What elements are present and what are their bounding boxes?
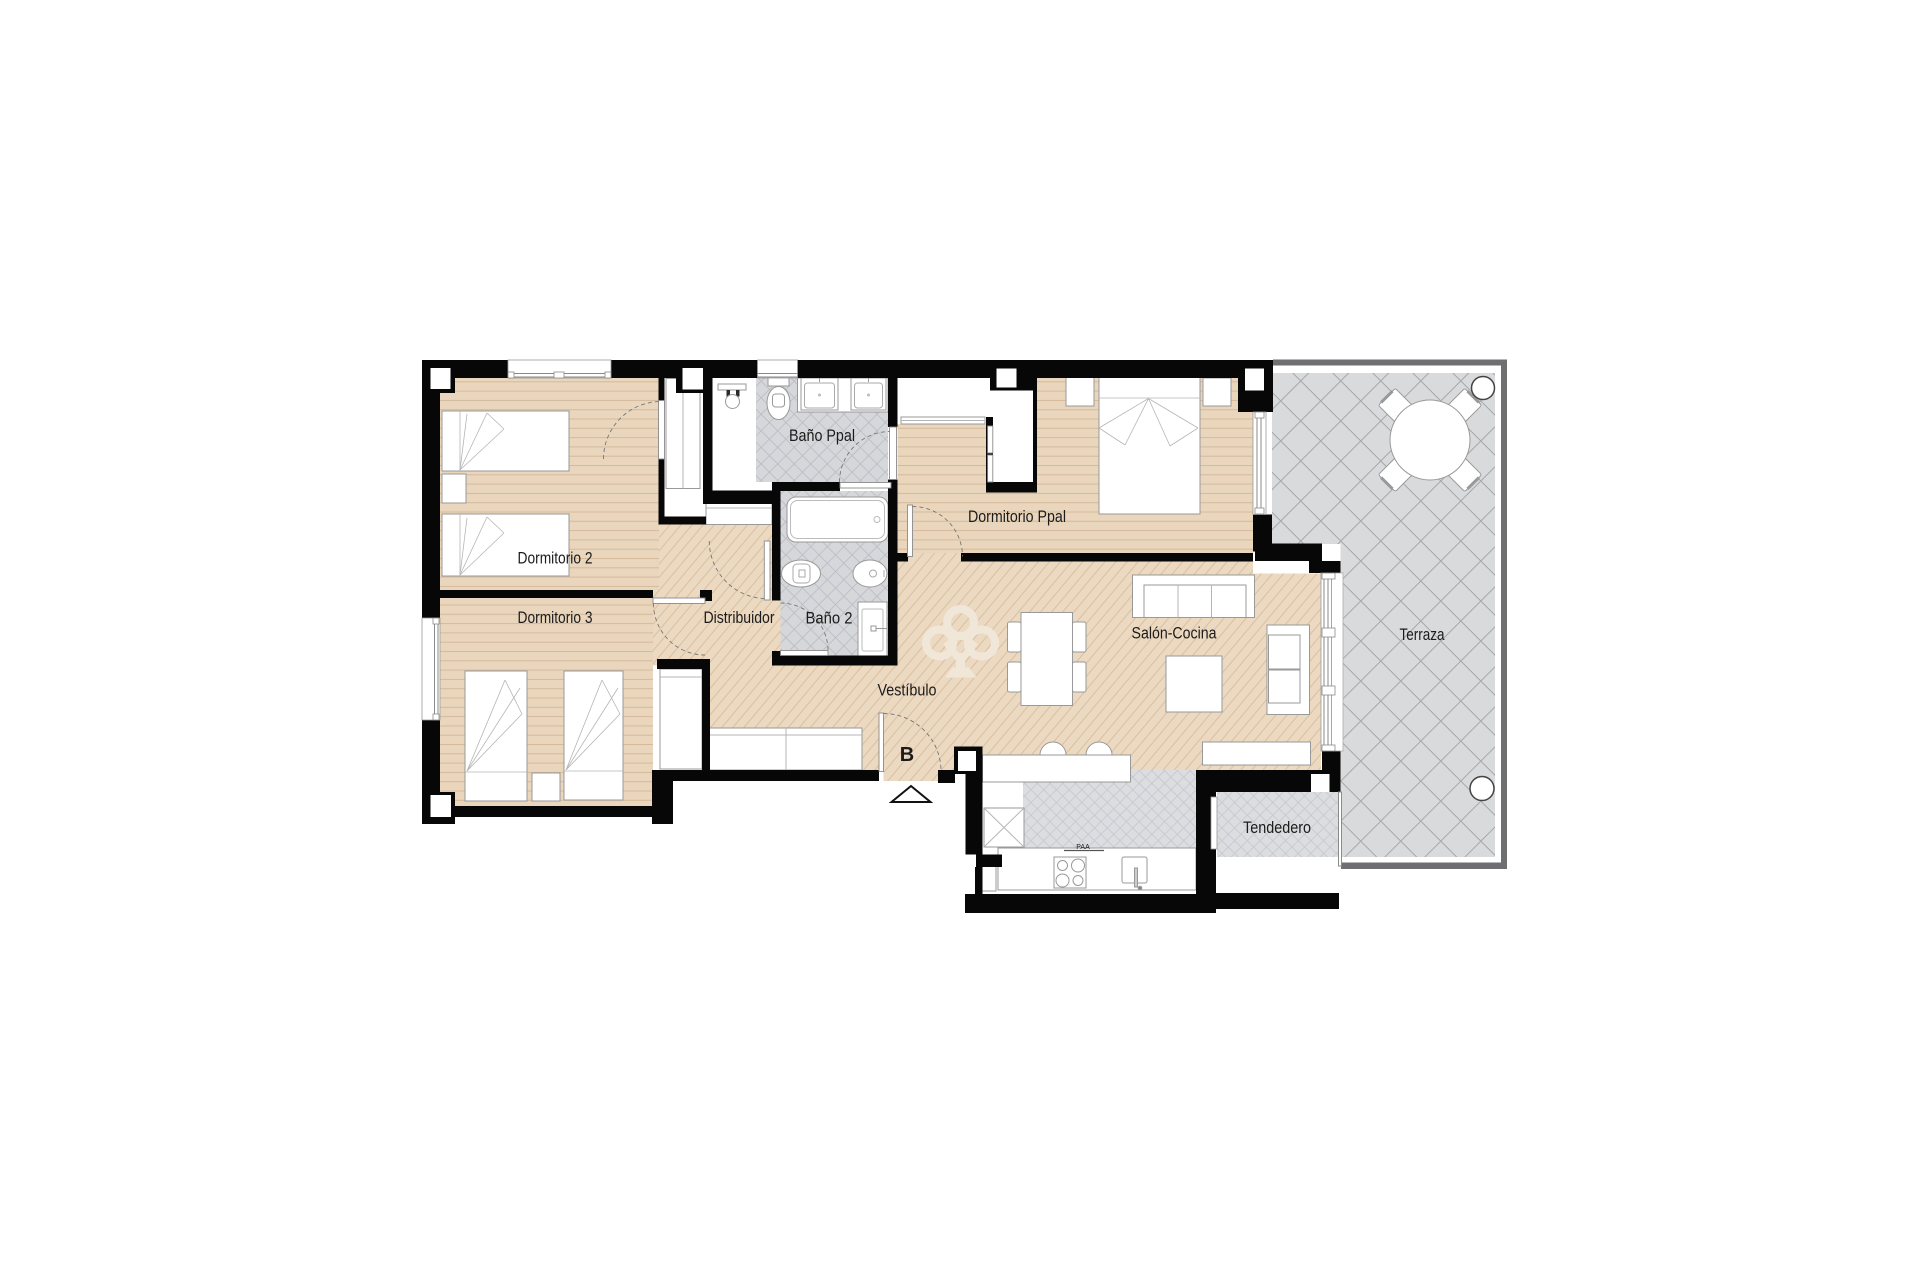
svg-text:B: B <box>900 744 914 766</box>
svg-text:PAA: PAA <box>1076 844 1090 851</box>
svg-text:Vestíbulo: Vestíbulo <box>878 682 937 700</box>
svg-text:Dormitorio 3: Dormitorio 3 <box>518 609 593 627</box>
svg-text:Baño 2: Baño 2 <box>806 610 853 628</box>
svg-text:Tendedero: Tendedero <box>1243 819 1311 837</box>
svg-text:Dormitorio 2: Dormitorio 2 <box>518 550 593 568</box>
svg-text:Baño Ppal: Baño Ppal <box>789 427 855 445</box>
svg-text:Distribuidor: Distribuidor <box>704 609 775 627</box>
svg-text:Dormitorio Ppal: Dormitorio Ppal <box>968 508 1066 526</box>
svg-text:Terraza: Terraza <box>1400 626 1446 644</box>
svg-text:Salón-Cocina: Salón-Cocina <box>1132 625 1218 643</box>
